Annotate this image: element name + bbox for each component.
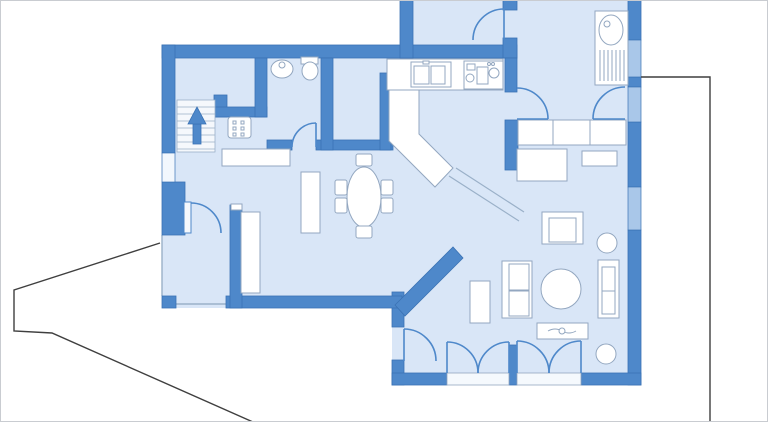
hall-cabinet — [241, 127, 244, 130]
east-wall-3 — [628, 122, 641, 187]
kitchen-sink — [431, 66, 445, 84]
kitchen-stove — [477, 67, 488, 84]
top-wall — [162, 45, 517, 58]
coffee-table — [541, 269, 581, 309]
floor-plan-canvas — [0, 0, 768, 422]
window-east-2 — [628, 87, 641, 122]
window-east-1 — [628, 40, 641, 77]
wc-pantry-divider — [321, 58, 333, 150]
wc-sink — [279, 62, 285, 68]
dining-chair-top — [356, 154, 372, 166]
hall-cabinet — [241, 133, 244, 136]
bookshelf — [470, 281, 490, 323]
kitchen-stove — [492, 63, 495, 66]
french-door-mullion — [509, 345, 517, 385]
french-door-b-threshold — [517, 373, 581, 385]
hall-wardrobe — [518, 120, 626, 145]
dining-bottom-wall — [226, 296, 402, 308]
hall-cabinet — [233, 127, 236, 130]
hall-cabinet — [241, 121, 244, 124]
terrace-post — [162, 296, 176, 308]
kitchen-stove — [488, 63, 491, 66]
hall-cabinet — [228, 117, 251, 138]
armchair — [549, 218, 576, 242]
vestibule-east-wall-upper — [503, 0, 517, 10]
window-left-wall — [162, 153, 175, 182]
utility-sink-unit — [599, 15, 623, 45]
hall-cabinet — [233, 121, 236, 124]
hall-west-wall-lower — [505, 120, 518, 170]
wall-end-cap — [231, 204, 242, 210]
dining-chair-right-2 — [381, 198, 393, 213]
living-shelf — [582, 151, 617, 166]
wc-west-wall — [255, 58, 267, 117]
kitchen-stove — [489, 68, 499, 78]
east-wall-1 — [628, 0, 641, 40]
living-bottom-wall-right — [581, 373, 641, 385]
wc-toilet — [302, 62, 318, 80]
terrace-outline-right — [641, 77, 710, 422]
vestibule-west-wall — [400, 0, 413, 58]
french-door-a-threshold — [447, 373, 509, 385]
dining-sideboard — [222, 149, 290, 166]
left-wall-upper — [162, 45, 175, 153]
living-desk — [517, 149, 567, 181]
terrace-door-leaf — [184, 202, 191, 233]
window-east-3 — [628, 187, 641, 230]
sofa-left — [509, 291, 529, 316]
bedroom-wardrobe — [241, 212, 260, 293]
dining-chair-bottom — [356, 226, 372, 238]
stair-direction-arrow-shaft — [193, 124, 201, 144]
sofa-left — [509, 264, 529, 290]
vestibule-east-wall-lower — [503, 38, 517, 58]
dining-chair-left-1 — [335, 180, 347, 195]
left-wall-chunk — [162, 182, 185, 235]
kitchen-sink — [423, 61, 429, 64]
plant-2 — [596, 344, 616, 364]
hall-cabinet — [233, 133, 236, 136]
hall-west-wall-upper — [505, 58, 517, 92]
east-wall-4 — [628, 230, 641, 385]
utility-sink-unit — [604, 21, 610, 27]
plant-1 — [597, 233, 617, 253]
dining-chair-left-2 — [335, 198, 347, 213]
kitchen-stove — [466, 74, 474, 82]
kitchen-sink — [414, 66, 429, 84]
dining-west-wall — [230, 205, 242, 308]
dining-chair-right-1 — [381, 180, 393, 195]
tv-lowboard — [559, 328, 565, 334]
kitchen-stove — [467, 64, 475, 70]
tall-sideboard — [301, 172, 320, 233]
living-bottom-wall-left — [392, 373, 447, 385]
east-wall-2 — [628, 77, 641, 87]
dining-table — [347, 167, 381, 227]
floor-plan — [0, 0, 768, 422]
